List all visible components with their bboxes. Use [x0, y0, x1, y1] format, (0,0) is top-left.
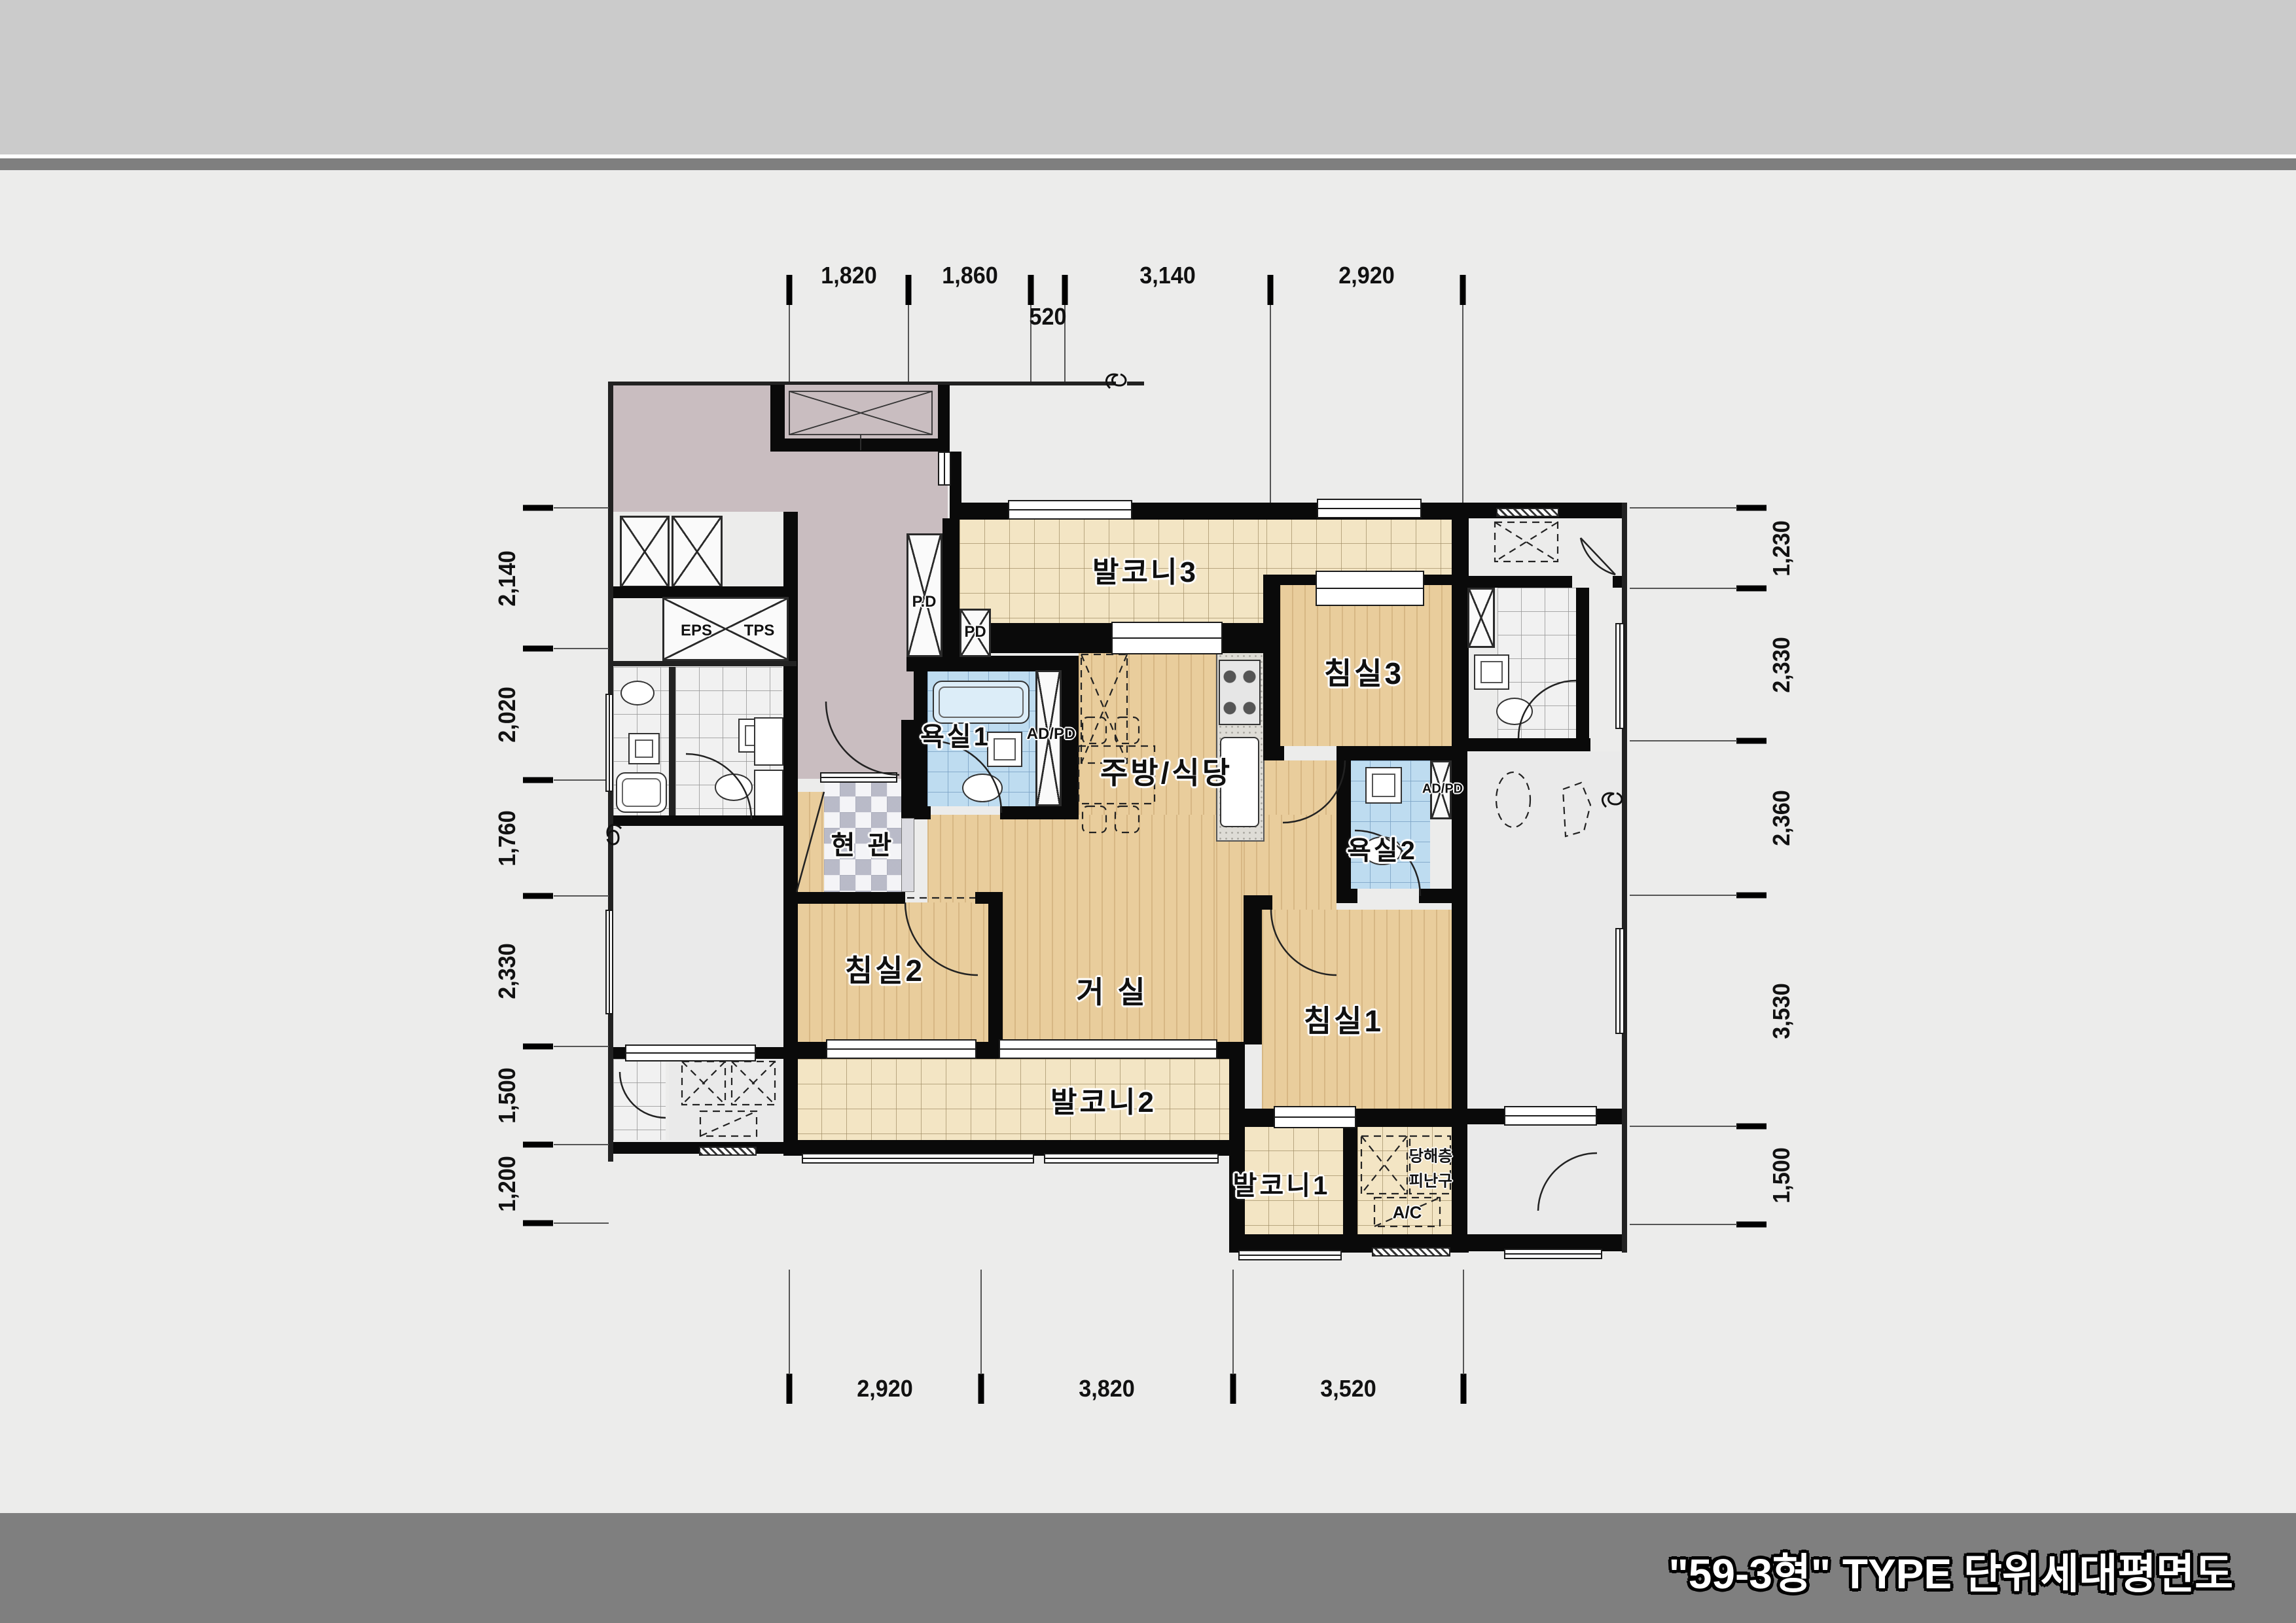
floor-plan-sheet: "59-3형" TYPE 단위세대평면도 EPS TPS — [0, 0, 2296, 1623]
eps-label: EPS — [681, 622, 712, 640]
neighbor-bath-door-arc — [686, 754, 751, 819]
room-label-bath2: 욕실2 — [1347, 829, 1418, 867]
room-label-living: 거 실 — [1076, 969, 1147, 1012]
bedroom3-door-arc — [1283, 760, 1345, 823]
adpd-label: AD/PD — [1422, 782, 1463, 797]
pd-label: P.D — [912, 593, 937, 611]
pd-label: PD — [964, 623, 986, 641]
break-squiggle — [607, 825, 621, 844]
dining-chair — [1083, 717, 1106, 743]
escape-hatch-label: 당해층 — [1409, 1143, 1452, 1166]
neighbor-balcony-door-arc — [620, 1072, 666, 1118]
bedroom1-door-arc — [1271, 910, 1336, 975]
room-label-balcony3: 발코니3 — [1092, 548, 1198, 590]
room-label-balcony1: 발코니1 — [1233, 1164, 1331, 1202]
ac-label: A/C — [1393, 1203, 1422, 1223]
tps-label: TPS — [744, 622, 775, 640]
plan-linework — [0, 0, 2296, 1623]
dining-chair — [1115, 806, 1139, 832]
room-label-bath1: 욕실1 — [920, 715, 991, 753]
room-label-kitchen: 주방/식당 — [1100, 749, 1232, 793]
room-label-bedroom1: 침실1 — [1304, 997, 1384, 1041]
room-label-entry: 현 관 — [831, 824, 895, 862]
neighbor-balcony-door-arc — [1538, 1153, 1597, 1211]
adpd-label: AD/PD — [1027, 725, 1076, 743]
shoe-closet-diagonal — [797, 792, 824, 892]
dining-chair — [1083, 806, 1106, 832]
room-label-bedroom2: 침실2 — [845, 947, 925, 990]
room-label-balcony2: 발코니2 — [1050, 1079, 1157, 1120]
escape-hatch-label: 피난구 — [1409, 1168, 1452, 1191]
entry-door-arc — [826, 702, 899, 775]
break-squiggle — [1106, 374, 1126, 388]
neighbor-door-leaf — [1581, 538, 1615, 575]
future-fixture — [1563, 783, 1590, 836]
neighbor-bath2-door-arc — [1518, 681, 1576, 738]
room-label-bedroom3: 침실3 — [1324, 650, 1404, 693]
future-fixture — [1496, 772, 1530, 827]
break-squiggle — [1602, 793, 1622, 807]
